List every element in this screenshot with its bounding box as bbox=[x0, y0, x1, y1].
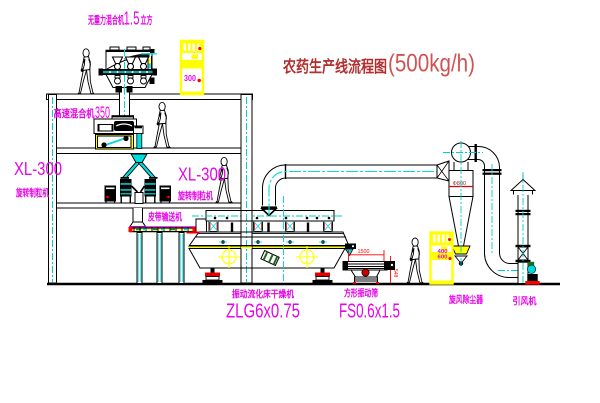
svg-text:高速混合机: 高速混合机 bbox=[54, 107, 95, 120]
svg-text:ZLG6x0.75: ZLG6x0.75 bbox=[226, 301, 300, 323]
svg-text:旋风除尘器: 旋风除尘器 bbox=[448, 294, 483, 306]
svg-text:XL-300: XL-300 bbox=[14, 159, 62, 179]
svg-text:立方: 立方 bbox=[141, 14, 153, 27]
svg-text:方形振动筛: 方形振动筛 bbox=[344, 288, 378, 300]
svg-text:振动流化床干燥机: 振动流化床干燥机 bbox=[232, 289, 294, 301]
svg-text:FS0.6x1.5: FS0.6x1.5 bbox=[339, 301, 400, 323]
svg-text:1500: 1500 bbox=[358, 249, 370, 255]
svg-text:引风机: 引风机 bbox=[513, 296, 537, 308]
svg-text:无重力混合机: 无重力混合机 bbox=[87, 14, 124, 27]
svg-text:548: 548 bbox=[392, 269, 398, 278]
svg-text:(500kg/h): (500kg/h) bbox=[388, 50, 475, 78]
svg-text:旋转制粒机: 旋转制粒机 bbox=[15, 187, 49, 200]
svg-text:600: 600 bbox=[438, 255, 448, 261]
svg-text:XL-300: XL-300 bbox=[178, 165, 226, 185]
svg-text:旋转制粒机: 旋转制粒机 bbox=[177, 190, 213, 203]
svg-text:350: 350 bbox=[95, 103, 110, 122]
svg-text:农药生产线流程图: 农药生产线流程图 bbox=[282, 57, 387, 76]
svg-text:皮带输送机: 皮带输送机 bbox=[147, 211, 182, 224]
svg-text:300: 300 bbox=[184, 73, 196, 83]
svg-text:Φ800: Φ800 bbox=[453, 181, 467, 187]
svg-text:1.5: 1.5 bbox=[124, 9, 140, 29]
